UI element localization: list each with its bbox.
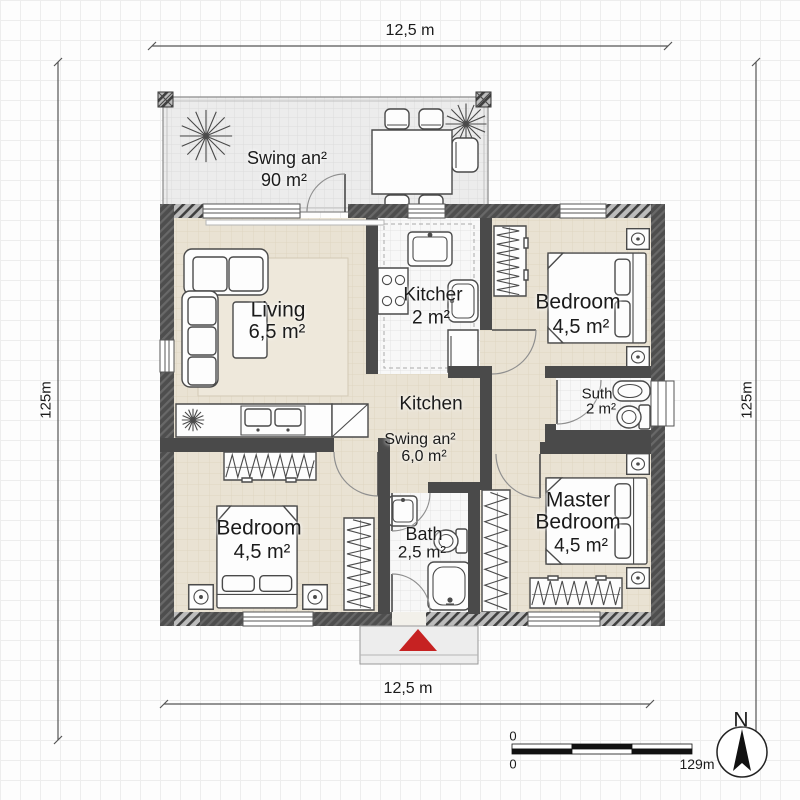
dimension-bottom: 12,5 m	[384, 681, 433, 697]
toilet	[617, 405, 650, 429]
master-name-line2: Bedroom	[535, 512, 620, 533]
kitchen-cabinet	[448, 330, 478, 372]
window	[408, 204, 445, 218]
suth-name: Suth	[582, 387, 613, 402]
scale-max: 129m	[679, 757, 714, 771]
compass	[717, 727, 767, 777]
plant-icon	[182, 409, 204, 431]
suth-area: 2 m²	[586, 402, 616, 417]
window	[560, 204, 606, 218]
kitchenette-name: Kitcher	[403, 286, 462, 305]
window	[528, 612, 600, 626]
bathtub	[428, 562, 470, 610]
wardrobe	[494, 226, 526, 296]
nightstand	[627, 454, 650, 475]
terrace-name: Swing an²	[247, 149, 327, 167]
terrace-post-left	[158, 92, 173, 107]
window-sill	[206, 220, 384, 225]
living-name: Living	[251, 300, 306, 321]
entrance-threshold	[392, 612, 426, 626]
hall-name: Kitchen	[399, 395, 462, 414]
master-name-line1: Master	[546, 490, 610, 511]
terrace-post-right	[476, 92, 491, 107]
dimension-top: 12,5 m	[386, 23, 435, 39]
hall-sub-name: Swing an²	[384, 432, 455, 448]
kitchenette-area: 2 m²	[412, 309, 450, 328]
window	[651, 381, 674, 426]
nightstand	[303, 585, 327, 609]
nightstand	[627, 347, 650, 368]
bedroom-top-area: 4,5 m²	[553, 317, 610, 337]
bath-name: Bath	[405, 525, 442, 543]
plant-icon	[180, 110, 232, 162]
living-area: 6,5 m²	[249, 322, 306, 342]
hall-sub-area: 6,0 m²	[401, 449, 446, 465]
nightstand	[627, 229, 650, 250]
bath-area: 2,5 m²	[398, 544, 446, 561]
nightstand	[627, 568, 650, 589]
window	[160, 340, 174, 372]
scale-zero-bottom: 0	[509, 758, 516, 771]
dimension-right: 125m	[740, 381, 755, 419]
terrace-area: 90 m²	[261, 171, 307, 189]
scale-zero-top: 0	[509, 730, 516, 743]
window	[203, 204, 300, 218]
bedroom-bottom-name: Bedroom	[216, 518, 301, 539]
scale-bar	[512, 744, 692, 754]
bedroom-top-name: Bedroom	[535, 292, 620, 313]
dining-table	[372, 130, 452, 194]
bedroom-bottom-area: 4,5 m²	[234, 542, 291, 562]
window	[243, 612, 313, 626]
master-area: 4,5 m²	[554, 537, 608, 556]
nightstand	[189, 585, 213, 609]
compass-north-label: N	[733, 710, 748, 731]
floor-plan-canvas: 12,5 m 12,5 m 125m 125m Swing an² 90 m² …	[0, 0, 800, 800]
dimension-left: 125m	[39, 381, 54, 419]
